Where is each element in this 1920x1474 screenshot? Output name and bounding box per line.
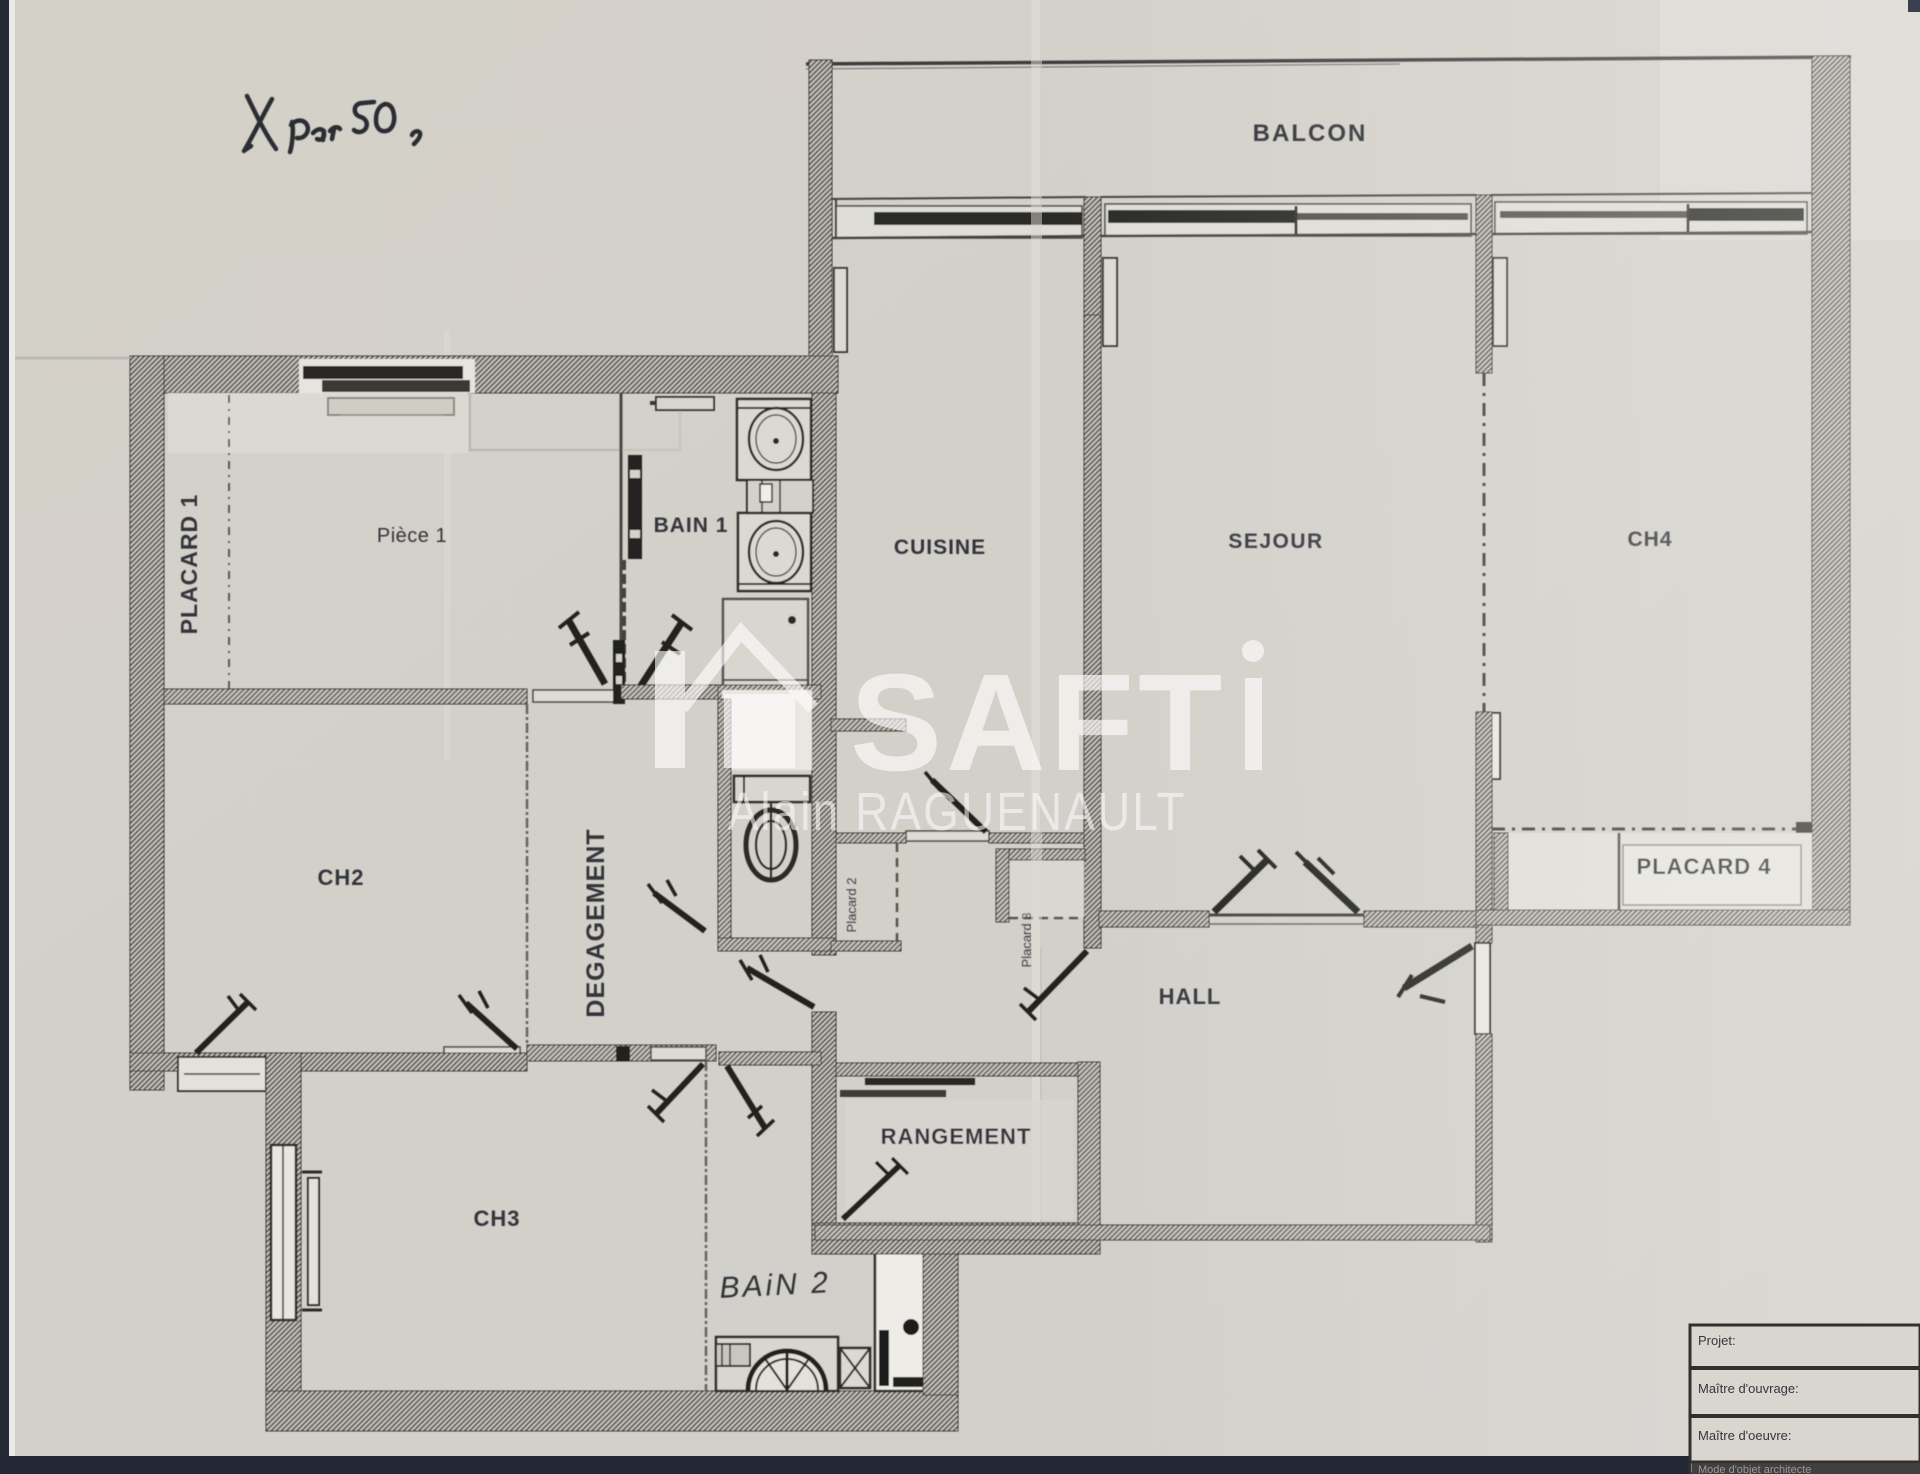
svg-text:Projet:: Projet: <box>1698 1333 1736 1348</box>
svg-text:Mode d'objet architecte: Mode d'objet architecte <box>1698 1464 1811 1474</box>
svg-text:SAFT: SAFT <box>850 646 1226 800</box>
svg-text:Maître d'ouvrage:: Maître d'ouvrage: <box>1698 1381 1799 1396</box>
svg-text:Maître d'oeuvre:: Maître d'oeuvre: <box>1698 1428 1792 1443</box>
svg-text:Alain RAGUENAULT: Alain RAGUENAULT <box>728 782 1187 842</box>
